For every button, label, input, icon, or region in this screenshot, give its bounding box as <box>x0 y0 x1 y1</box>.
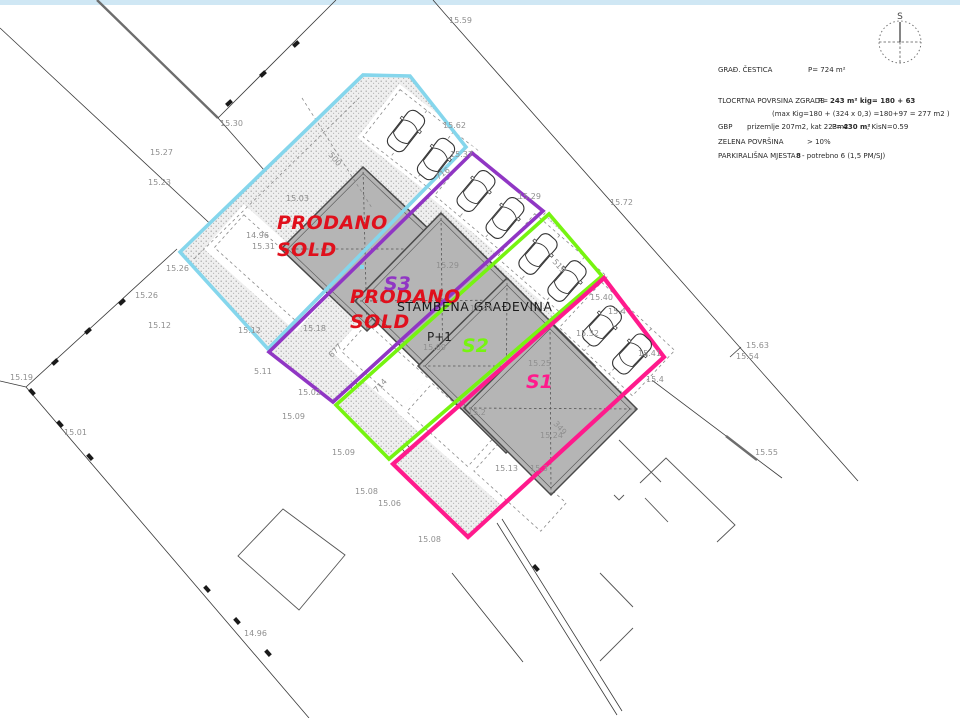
elevation-label: 15.09 <box>282 412 305 421</box>
elevation-label: 15.30 <box>220 119 243 128</box>
elevation-label: 15.55 <box>755 448 778 457</box>
info-row2-value: 243 m² kig= 180 + 63 <box>830 97 915 105</box>
info-row6-label: PARKIRALIŠNA MJESTA <box>718 152 796 160</box>
elevation-label: 15.26 <box>166 264 189 273</box>
elevation-label: 15.19 <box>10 373 33 382</box>
elevation-label: 15.25 <box>528 359 551 368</box>
elevation-label: 15.54 <box>736 352 759 361</box>
elevation-label: 15.27 <box>150 148 173 157</box>
elevation-label: 15.63 <box>746 341 769 350</box>
info-row5-value: > 10% <box>807 138 831 146</box>
elevation-label: 15.59 <box>449 16 472 25</box>
elevation-label: 14.96 <box>246 231 269 240</box>
elevation-label: 15.02 <box>298 388 321 397</box>
info-row2-p: P= <box>818 97 828 105</box>
plot-label-s3: S3 <box>384 273 411 295</box>
elevation-label: 15.06 <box>378 499 401 508</box>
elevation-label: 15.18 <box>303 324 326 333</box>
elevation-label: 15.31 <box>252 242 275 251</box>
elevation-label: 15.72 <box>610 198 633 207</box>
elevation-label: 15.13 <box>495 464 518 473</box>
info-row4-p: P= <box>832 123 842 131</box>
elevation-label: 15.29 <box>436 261 459 270</box>
elevation-label: 15.4 <box>646 375 664 384</box>
elevation-label: 15.2 <box>468 408 486 417</box>
sold-label-1-line-2: SOLD <box>277 239 337 261</box>
elevation-label: 15.40 <box>590 293 613 302</box>
compass-north-label: S <box>897 12 903 22</box>
elevation-label: 14.96 <box>244 629 267 638</box>
elevation-label: 15.26 <box>135 291 158 300</box>
utility-marker <box>360 265 364 269</box>
info-row2-label: TLOCRTNA POVRSINA ZGRADE <box>718 97 825 105</box>
info-row5-label: ZELENA POVRŠINA <box>718 138 784 146</box>
info-row4-suffix: , KisN=0.59 <box>867 123 908 131</box>
elevation-label: 15.4 <box>608 307 626 316</box>
elevation-label: 15.12 <box>148 321 171 330</box>
elevation-label: 15.29 <box>518 192 541 201</box>
elevation-label: 15.03 <box>286 194 309 203</box>
elevation-label: 5.11 <box>254 367 272 376</box>
elevation-label: 15.08 <box>355 487 378 496</box>
sold-label-1-line-1: PRODANO <box>277 212 388 234</box>
plot-label-s2: S2 <box>462 335 489 357</box>
elevation-label: 15.41 <box>638 349 661 358</box>
info-row6-suffix: - potrebno 6 (1,5 PM/SJ) <box>802 152 885 160</box>
elevation-label: 15.29 <box>470 304 493 313</box>
info-row4-label: GBP <box>718 123 732 131</box>
elevation-label: 15.23 <box>148 178 171 187</box>
elevation-label: 15.3 <box>530 464 548 473</box>
info-row1-value: P= 724 m² <box>808 66 846 74</box>
elevation-label: 15.32 <box>576 329 599 338</box>
info-row3-text: (max Kig=180 + (324 x 0,3) =180+97 = 277… <box>772 110 950 118</box>
elevation-label: 15.37 <box>450 150 473 159</box>
elevation-label: 15.09 <box>332 448 355 457</box>
elevation-label: 15.62 <box>443 121 466 130</box>
floors-label: P+1 <box>427 330 452 344</box>
site-plan-page: PRODANO SOLD PRODANO SOLD S3 S2 S1 STAMB… <box>0 0 960 718</box>
info-row1-label: GRAĐ. ČESTICA <box>718 66 772 74</box>
elevation-label: 15.01 <box>64 428 87 437</box>
info-row6-value: 8 <box>796 152 801 160</box>
plot-label-s1: S1 <box>526 371 553 393</box>
elevation-label: 15.09 <box>423 343 446 352</box>
elevation-label: 15.12 <box>238 326 261 335</box>
info-panel: GRAĐ. ČESTICA P= 724 m² TLOCRTNA POVRSIN… <box>715 60 957 170</box>
sold-label-2-line-2: SOLD <box>350 311 410 333</box>
top-blue-strip <box>0 0 960 5</box>
elevation-label: 15.08 <box>418 535 441 544</box>
